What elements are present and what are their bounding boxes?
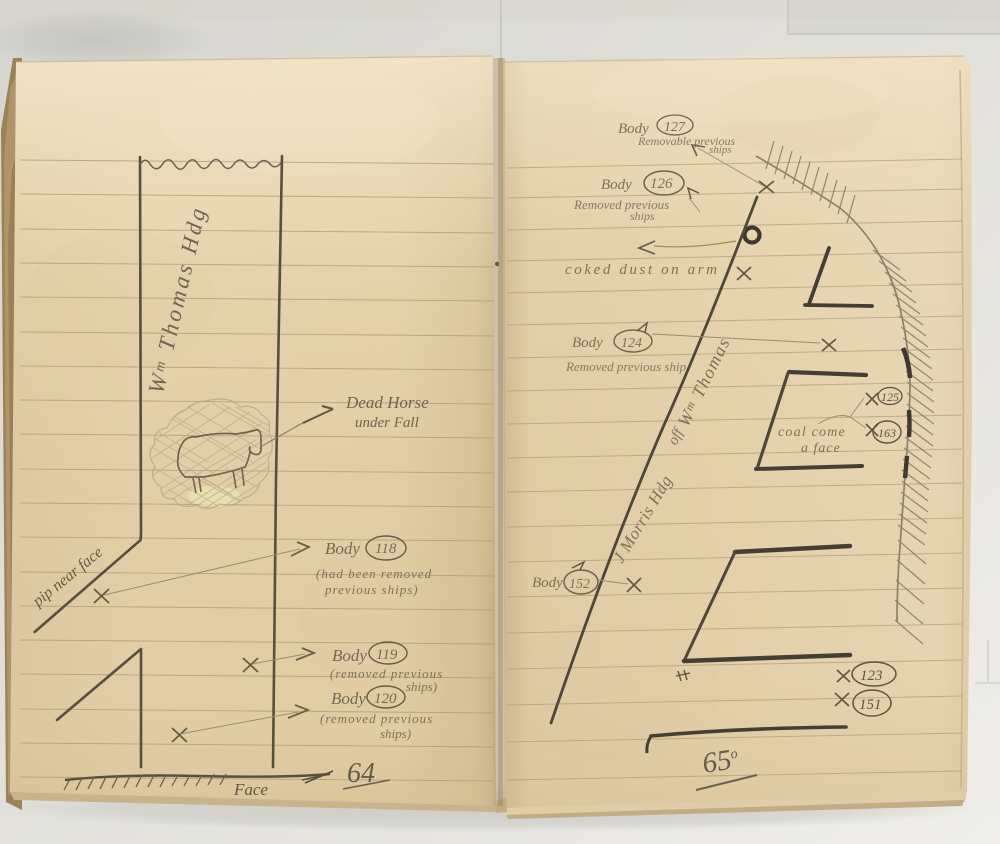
svg-text:151: 151 (859, 697, 882, 713)
svg-text:Removed previous ship: Removed previous ship (565, 359, 687, 374)
svg-text:ships: ships (709, 144, 732, 156)
svg-text:124: 124 (621, 336, 642, 351)
svg-text:coal come: coal come (778, 425, 846, 440)
svg-text:123: 123 (860, 668, 883, 684)
svg-text:Body: Body (532, 575, 563, 591)
svg-text:coked dust on arm: coked dust on arm (565, 262, 720, 278)
svg-text:126: 126 (650, 176, 673, 192)
svg-text:125: 125 (881, 390, 899, 404)
svg-text:Body: Body (331, 689, 366, 708)
svg-text:Body: Body (572, 335, 603, 351)
svg-text:(had been removed: (had been removed (316, 566, 432, 581)
svg-text:118: 118 (375, 541, 397, 557)
svg-text:Body: Body (332, 646, 367, 665)
svg-text:ships): ships) (406, 679, 437, 694)
svg-text:a face: a face (801, 441, 841, 456)
svg-text:Body: Body (601, 177, 632, 193)
svg-text:152: 152 (569, 577, 590, 592)
svg-text:163: 163 (878, 426, 896, 440)
svg-text:ships): ships) (380, 726, 411, 741)
svg-text:ships: ships (630, 209, 655, 223)
svg-text:Body: Body (325, 539, 360, 558)
svg-text:under Fall: under Fall (355, 415, 419, 431)
svg-text:127: 127 (664, 120, 686, 135)
svg-text:previous ships): previous ships) (324, 582, 419, 597)
svg-text:Dead Horse: Dead Horse (345, 393, 429, 412)
svg-text:(removed previous: (removed previous (320, 711, 433, 726)
svg-text:119: 119 (376, 647, 398, 663)
svg-text:120: 120 (374, 691, 397, 707)
svg-text:Face: Face (233, 780, 268, 799)
svg-text:Removed previous: Removed previous (573, 197, 669, 212)
